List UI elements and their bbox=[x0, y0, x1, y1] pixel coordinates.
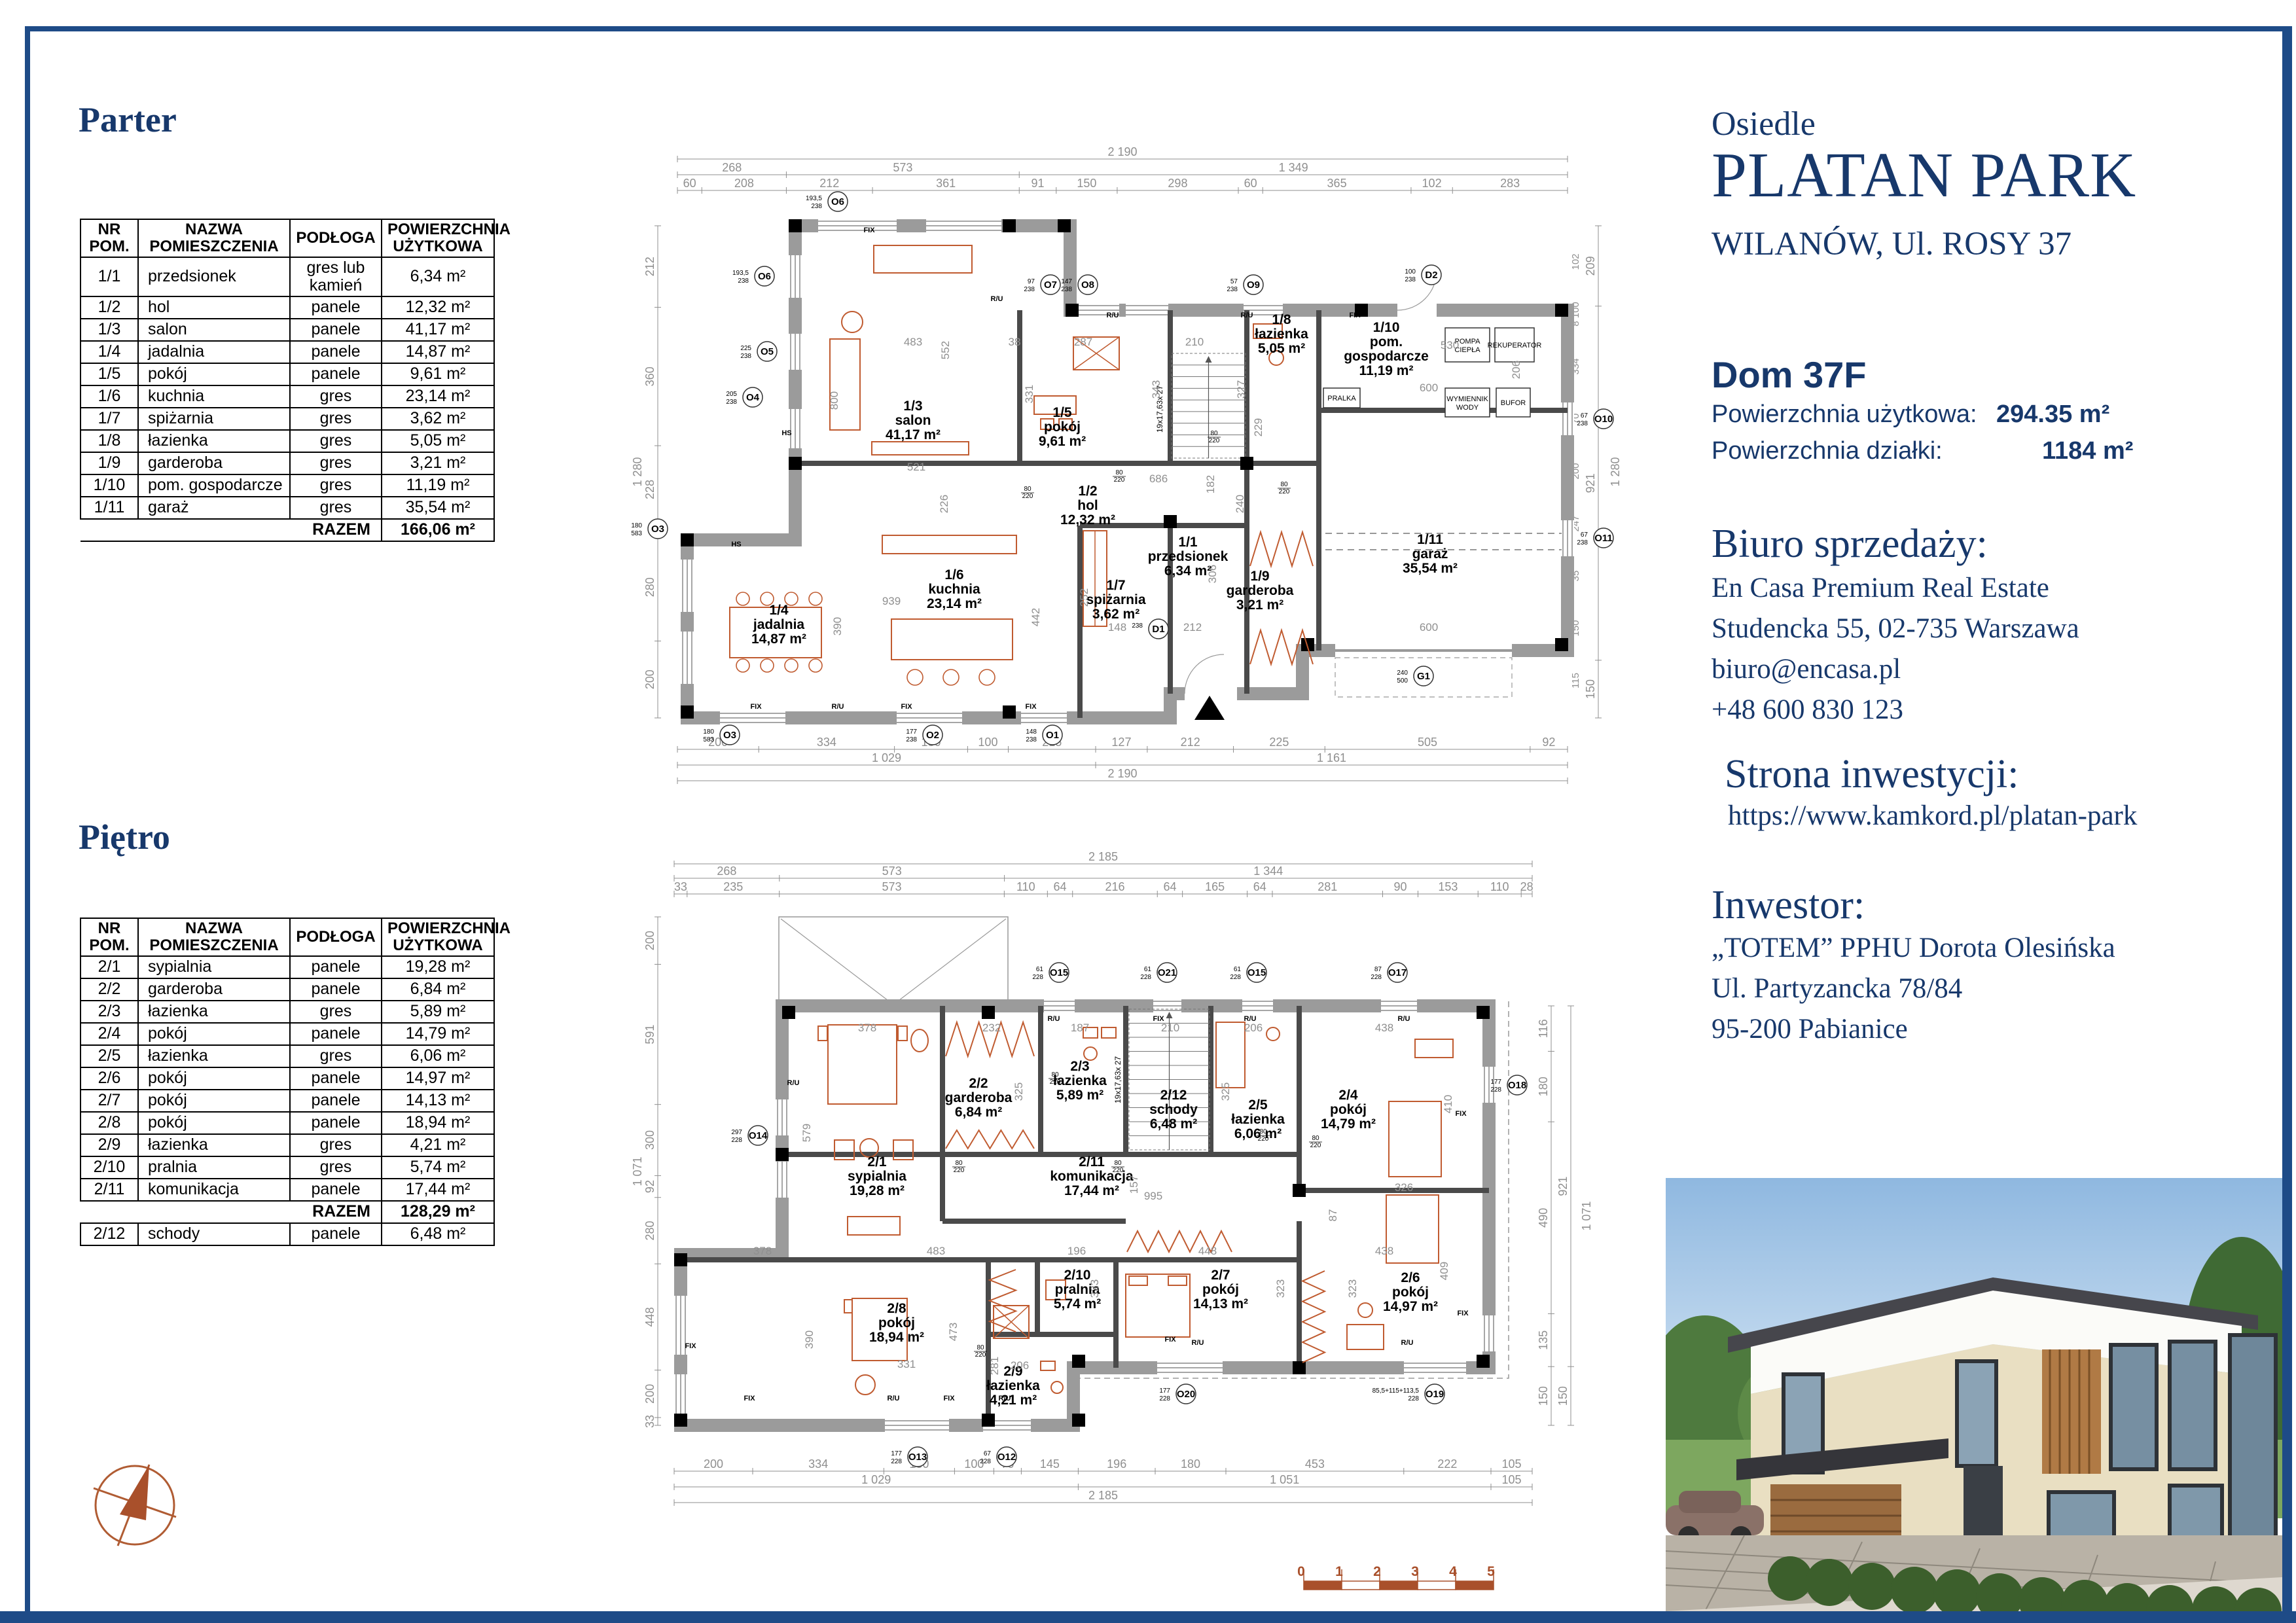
dim-label: 591 bbox=[643, 1025, 656, 1044]
room-text: jadalnia bbox=[753, 617, 805, 632]
dim-label: 115 bbox=[1570, 673, 1581, 688]
cell-ar: 5,89 m² bbox=[382, 1001, 494, 1023]
dim-label: 200 bbox=[643, 669, 656, 689]
marker-sub: 148 bbox=[1026, 728, 1037, 736]
table-row: 1/8łazienkagres5,05 m² bbox=[81, 430, 494, 452]
table-row: 2/10pralniagres5,74 m² bbox=[81, 1156, 494, 1179]
house-id: Dom 37F bbox=[1712, 353, 1867, 396]
cell-nm: garderoba bbox=[138, 452, 290, 474]
dim-label: 327 bbox=[1235, 380, 1247, 399]
marker-id: O4 bbox=[746, 392, 760, 403]
dim-label: 686 bbox=[1149, 473, 1168, 485]
marker-sub: 57 bbox=[1230, 278, 1238, 285]
col-header: POWIERZCHNIAUŻYTKOWA bbox=[382, 918, 494, 956]
cell-nm: schody bbox=[138, 1223, 290, 1245]
dim-label: 212 bbox=[1181, 736, 1200, 749]
dim-label: 2 190 bbox=[1107, 767, 1137, 780]
usable-area-line: Powierzchnia użytkowa: 294.35 m² bbox=[1712, 401, 2274, 429]
room-text: 5,74 m² bbox=[1054, 1296, 1101, 1311]
marker-sub: 583 bbox=[703, 736, 714, 743]
cell-nr: 2/5 bbox=[81, 1045, 138, 1067]
marker-sub: 228 bbox=[1408, 1395, 1419, 1402]
dim-label: 102 bbox=[1570, 253, 1581, 270]
marker-sub: 228 bbox=[1371, 974, 1382, 981]
dim-label: 280 bbox=[643, 1221, 656, 1240]
dim-label: R/U bbox=[1241, 312, 1253, 319]
dim-label: R/U bbox=[1192, 1339, 1204, 1347]
marker-id: G1 bbox=[1417, 671, 1430, 682]
window-marker-O6: O6193,5238 bbox=[732, 266, 774, 286]
marker-id: O5 bbox=[761, 346, 774, 357]
dim-label: 206 bbox=[1011, 1359, 1029, 1372]
room-text: 6,84 m² bbox=[955, 1105, 1002, 1120]
marker-sub: 238 bbox=[1061, 286, 1072, 293]
room-text: 1/1 bbox=[1178, 535, 1198, 550]
marker-sub: 238 bbox=[811, 203, 822, 210]
cell-nm: pokój bbox=[138, 1090, 290, 1112]
dim-label: 334 bbox=[817, 736, 836, 749]
col-header: PODŁOGA bbox=[290, 918, 382, 956]
room-text: spiżarnia bbox=[1086, 592, 1145, 607]
dim-label: 235 bbox=[723, 880, 743, 893]
dim-label: 180 bbox=[1181, 1457, 1200, 1471]
marker-sub: 500 bbox=[1397, 677, 1408, 685]
room-text: pokój bbox=[1044, 419, 1081, 435]
cell-fl: gres bbox=[290, 430, 382, 452]
marker-id: O13 bbox=[908, 1452, 927, 1463]
dim-label: R/U bbox=[1244, 1015, 1257, 1023]
dim-label: FIX bbox=[750, 703, 762, 711]
equipment-label: WYMIENNIK bbox=[1446, 395, 1488, 403]
marker-sub: 297 bbox=[731, 1129, 742, 1136]
marker-sub: 177 bbox=[906, 728, 917, 736]
room-text: 2/5 bbox=[1248, 1097, 1268, 1113]
dim-label: 182 bbox=[1204, 475, 1217, 493]
marker-sub: 238 bbox=[1026, 736, 1037, 743]
dim-label: 91 bbox=[1031, 177, 1045, 190]
table-row: 1/11garażgres35,54 m² bbox=[81, 497, 494, 519]
cell-ar: 14,97 m² bbox=[382, 1067, 494, 1090]
dim-label: 1 280 bbox=[631, 457, 644, 486]
sales-office-title: Biuro sprzedaży: bbox=[1712, 521, 1988, 567]
dim-label: 226 bbox=[938, 495, 950, 513]
pietro-title: Piętro bbox=[79, 817, 170, 857]
dim-label: 28 bbox=[1520, 880, 1534, 893]
dim-label: 150 bbox=[1584, 679, 1597, 699]
cell-nr: 2/6 bbox=[81, 1067, 138, 1090]
dim-label: 150 bbox=[1556, 1386, 1570, 1406]
office-phone[interactable]: +48 600 830 123 bbox=[1712, 694, 1903, 726]
dim-label: FIX bbox=[943, 1395, 955, 1402]
dim-label: 378 bbox=[753, 1245, 772, 1257]
dim-label: 268 bbox=[717, 865, 736, 878]
cell-fl: gres bbox=[290, 408, 382, 430]
room-text: 14,87 m² bbox=[751, 632, 806, 647]
dim-label: HS bbox=[781, 429, 791, 437]
table-row: 1/9garderobagres3,21 m² bbox=[81, 452, 494, 474]
marker-sub: 67 bbox=[1581, 531, 1588, 539]
equipment-label: BUFOR bbox=[1501, 399, 1526, 407]
cell-nm: salon bbox=[138, 319, 290, 341]
dim-label: 150 bbox=[1537, 1386, 1550, 1406]
cell-ar: 3,62 m² bbox=[382, 408, 494, 430]
dim-label: 323 bbox=[1274, 1279, 1287, 1298]
dim-label: R/U bbox=[888, 1395, 900, 1402]
investor-line: „TOTEM” PPHU Dorota Olesińska bbox=[1712, 932, 2115, 964]
marker-sub: 147 bbox=[1061, 278, 1072, 285]
marker-id: O1 bbox=[1046, 730, 1059, 741]
dim-label: 360 bbox=[643, 366, 656, 386]
window-marker-O17: O1787228 bbox=[1371, 963, 1407, 982]
room-text: 1/8 bbox=[1272, 312, 1291, 327]
cell-nr: 2/9 bbox=[81, 1134, 138, 1156]
room-text: łazienka bbox=[1255, 327, 1308, 342]
marker-sub: 238 bbox=[738, 277, 749, 285]
cell-ar: 17,44 m² bbox=[382, 1179, 494, 1201]
marker-id: O6 bbox=[831, 196, 844, 207]
dim-label: 573 bbox=[882, 865, 902, 878]
dim-label: 1 161 bbox=[1317, 751, 1346, 764]
room-text: 3,62 m² bbox=[1092, 607, 1139, 622]
table-row: 2/5łazienkagres6,06 m² bbox=[81, 1045, 494, 1067]
dim-label: 331 bbox=[1023, 385, 1035, 403]
cell-ar: 6,84 m² bbox=[382, 978, 494, 1001]
marker-sub: 67 bbox=[984, 1450, 992, 1457]
dim-label: 220 bbox=[1022, 493, 1033, 500]
dim-label: 325 bbox=[1013, 1082, 1025, 1101]
dim-label: 232 bbox=[982, 1022, 1001, 1034]
osiedle-label: Osiedle bbox=[1712, 105, 1816, 143]
marker-sub: 238 bbox=[1024, 286, 1035, 293]
dim-label: 33 bbox=[674, 880, 687, 893]
dim-label: 220 bbox=[1258, 1135, 1269, 1143]
dim-label: 64 bbox=[1163, 880, 1176, 893]
room-text: 1/9 bbox=[1250, 569, 1269, 584]
table-row: 1/7spiżarniagres3,62 m² bbox=[81, 408, 494, 430]
cell-nm: łazienka bbox=[138, 1045, 290, 1067]
equipment-label: WODY bbox=[1456, 404, 1479, 412]
dim-label: 390 bbox=[831, 617, 844, 635]
cell-nr: 1/6 bbox=[81, 385, 138, 408]
room-text: 2/8 bbox=[887, 1301, 906, 1316]
dim-label: 87 bbox=[1327, 1209, 1339, 1222]
equipment-label: PRALKA bbox=[1327, 395, 1356, 402]
dim-label: 1 071 bbox=[1580, 1201, 1593, 1230]
cell-nm: pokój bbox=[138, 1067, 290, 1090]
marker-sub: 228 bbox=[891, 1458, 902, 1465]
dim-label: 196 bbox=[1067, 1245, 1086, 1257]
dim-label: FIX bbox=[685, 1342, 696, 1350]
cell-nr: 1/4 bbox=[81, 341, 138, 363]
room-text: 4,21 m² bbox=[990, 1393, 1037, 1408]
dim-label: HS bbox=[731, 541, 741, 548]
room-text: hol bbox=[1077, 498, 1098, 513]
marker-id: O9 bbox=[1247, 279, 1260, 291]
dim-label: 148 bbox=[1108, 621, 1126, 633]
cell-ar: 18,94 m² bbox=[382, 1112, 494, 1134]
dim-label: R/U bbox=[991, 295, 1003, 303]
table-row: 1/1przedsionekgres lub kamień6,34 m² bbox=[81, 257, 494, 296]
room-text: 23,14 m² bbox=[927, 596, 982, 611]
dim-label: 521 bbox=[907, 461, 925, 473]
window-marker-O5: O5225238 bbox=[740, 342, 777, 361]
cell-nr: 2/1 bbox=[81, 956, 138, 978]
room-text: 6,34 m² bbox=[1164, 563, 1211, 579]
dim-label: FIX bbox=[1025, 703, 1037, 711]
pietro-room-table: NRPOM.NAZWAPOMIESZCZENIAPODŁOGAPOWIERZCH… bbox=[80, 918, 495, 1246]
dim-label: 64 bbox=[1253, 880, 1266, 893]
cell-fl: panele bbox=[290, 1023, 382, 1045]
marker-id: O12 bbox=[997, 1452, 1016, 1463]
dim-label: 298 bbox=[1168, 177, 1187, 190]
room-text: 2/4 bbox=[1338, 1088, 1358, 1103]
investment-site-url[interactable]: https://www.kamkord.pl/platan-park bbox=[1728, 800, 2137, 832]
room-text: pom. bbox=[1370, 334, 1403, 349]
cell-nr: 1/9 bbox=[81, 452, 138, 474]
dim-label: 206 bbox=[1244, 1022, 1263, 1034]
dim-label: 283 bbox=[1500, 177, 1520, 190]
dim-label: 579 bbox=[800, 1124, 813, 1142]
table-row: 1/4jadalniapanele14,87 m² bbox=[81, 341, 494, 363]
table-row: 2/2garderobapanele6,84 m² bbox=[81, 978, 494, 1001]
window-marker-G1: G1240500 bbox=[1397, 666, 1433, 686]
cell-ar: 5,74 m² bbox=[382, 1156, 494, 1179]
marker-id: O19 bbox=[1426, 1389, 1444, 1400]
cell-ar: 4,21 m² bbox=[382, 1134, 494, 1156]
cell-fl: gres bbox=[290, 1156, 382, 1179]
room-text: pokój bbox=[1392, 1285, 1429, 1300]
dim-label: 438 bbox=[1375, 1022, 1393, 1034]
cell-nr: 2/4 bbox=[81, 1023, 138, 1045]
office-line: Studencka 55, 02-735 Warszawa bbox=[1712, 613, 2079, 645]
dim-label: 323 bbox=[1346, 1279, 1359, 1298]
dim-label: 573 bbox=[893, 161, 912, 174]
window-marker-O7: O797238 bbox=[1024, 275, 1060, 294]
cell-nm: kuchnia bbox=[138, 385, 290, 408]
room-label-2-12: 2/12schody6,48 m² bbox=[1149, 1088, 1198, 1132]
dim-label: 600 bbox=[1420, 382, 1438, 394]
dim-label: 102 bbox=[1422, 177, 1442, 190]
marker-sub: 177 bbox=[891, 1450, 902, 1457]
dim-label: 229 bbox=[1252, 418, 1265, 437]
cell-fl: panele bbox=[290, 363, 382, 385]
marker-sub: 225 bbox=[740, 345, 751, 352]
plan-sheet: Parter NRPOM.NAZWAPOMIESZCZENIAPODŁOGAPO… bbox=[0, 0, 2296, 1623]
room-text: 1/7 bbox=[1106, 578, 1125, 593]
window-marker-O3: O3180583 bbox=[631, 519, 668, 539]
parter-title: Parter bbox=[79, 99, 177, 140]
room-label-1-6: 1/6kuchnia23,14 m² bbox=[927, 567, 982, 611]
dim-label: 220 bbox=[954, 1167, 965, 1174]
cell-fl: gres lub kamień bbox=[290, 257, 382, 296]
dim-label: 252 bbox=[1078, 588, 1090, 607]
col-header: NRPOM. bbox=[81, 219, 138, 257]
cell-fl: gres bbox=[290, 1045, 382, 1067]
room-text: 2/10 bbox=[1064, 1268, 1091, 1283]
cell-nr: 1/1 bbox=[81, 257, 138, 296]
window-marker-O10: O1067238 bbox=[1577, 409, 1613, 429]
cell-ar: 11,19 m² bbox=[382, 474, 494, 497]
marker-id: O10 bbox=[1594, 414, 1613, 425]
marker-id: D1 bbox=[1152, 624, 1164, 635]
cell-nm: łazienka bbox=[138, 430, 290, 452]
cell-nr: 2/3 bbox=[81, 1001, 138, 1023]
room-text: łazienka bbox=[986, 1378, 1040, 1393]
table-row: 2/8pokójpanele18,94 m² bbox=[81, 1112, 494, 1134]
dim-label: 1 280 bbox=[1609, 457, 1622, 486]
room-text: 6,48 m² bbox=[1150, 1116, 1197, 1132]
dim-label: FIX bbox=[901, 703, 912, 711]
cell-fl: panele bbox=[290, 1067, 382, 1090]
razem-row: RAZEM128,29 m² bbox=[81, 1201, 494, 1223]
table-row: 2/11komunikacjapanele17,44 m² bbox=[81, 1179, 494, 1201]
table-row: 1/3salonpanele41,17 m² bbox=[81, 319, 494, 341]
room-label-2-2: 2/2garderoba6,84 m² bbox=[945, 1076, 1013, 1120]
room-text: pokój bbox=[1202, 1282, 1239, 1297]
room-text: 2/6 bbox=[1401, 1270, 1420, 1285]
estate-name: PLATAN PARK bbox=[1712, 139, 2136, 211]
room-text: 17,44 m² bbox=[1064, 1183, 1119, 1198]
room-text: kuchnia bbox=[928, 582, 980, 597]
dim-label: R/U bbox=[999, 1395, 1011, 1402]
dim-label: 216 bbox=[1105, 880, 1124, 893]
dim-label: 110 bbox=[1490, 880, 1509, 893]
cell-nr: 1/5 bbox=[81, 363, 138, 385]
dim-label: 361 bbox=[936, 177, 956, 190]
room-text: 2/3 bbox=[1070, 1059, 1089, 1074]
dim-label: 60 bbox=[1244, 177, 1257, 190]
table-row: 2/3łazienkagres5,89 m² bbox=[81, 1001, 494, 1023]
dim-label: 448 bbox=[1198, 1245, 1217, 1257]
dim-label: 80 bbox=[1115, 469, 1123, 476]
marker-sub: 85,5+115+113,5 bbox=[1372, 1387, 1420, 1395]
dim-label: 80 bbox=[1024, 486, 1031, 493]
marker-id: O18 bbox=[1508, 1080, 1526, 1091]
cell-nr: 2/7 bbox=[81, 1090, 138, 1112]
investor-title: Inwestor: bbox=[1712, 882, 1865, 929]
room-text: 35,54 m² bbox=[1403, 561, 1458, 576]
marker-sub: 61 bbox=[1144, 966, 1152, 973]
estate-address: WILANÓW, Ul. ROSY 37 bbox=[1712, 225, 2072, 263]
cell-nr: 1/11 bbox=[81, 497, 138, 519]
cell-nr: 2/2 bbox=[81, 978, 138, 1001]
col-header: PODŁOGA bbox=[290, 219, 382, 257]
marker-sub: 193,5 bbox=[806, 195, 822, 202]
marker-sub: 228 bbox=[731, 1137, 742, 1144]
dim-label: 210 bbox=[1161, 1022, 1179, 1034]
window-marker-O12: O1267228 bbox=[980, 1447, 1016, 1467]
marker-sub: 228 bbox=[1490, 1086, 1501, 1094]
cell-ar: 19,28 m² bbox=[382, 956, 494, 978]
room-text: pokój bbox=[1330, 1102, 1367, 1117]
office-email[interactable]: biuro@encasa.pl bbox=[1712, 653, 1901, 685]
room-label-2-3: 2/3łazienka5,89 m² bbox=[1053, 1059, 1107, 1103]
marker-sub: 228 bbox=[1159, 1395, 1170, 1402]
cell-fl: panele bbox=[290, 978, 382, 1001]
dim-label: FIX bbox=[1153, 1015, 1164, 1023]
marker-id: O21 bbox=[1158, 967, 1176, 978]
dim-label: 225 bbox=[1269, 736, 1289, 749]
room-text: 1/6 bbox=[944, 567, 963, 582]
dim-label: 80 bbox=[1312, 1135, 1319, 1142]
plot-area-label: Powierzchnia działki: bbox=[1712, 437, 1943, 465]
cell-fl: panele bbox=[290, 1179, 382, 1201]
room-text: gospodarcze bbox=[1344, 349, 1429, 364]
window-marker-O4: O4205238 bbox=[726, 387, 762, 407]
col-header: POWIERZCHNIAUŻYTKOWA bbox=[382, 219, 494, 257]
dim-label: 287 bbox=[1074, 336, 1092, 348]
dim-label: 281 bbox=[988, 1357, 1001, 1375]
room-label-1-4: 1/4jadalnia14,87 m² bbox=[751, 603, 806, 647]
room-text: 12,32 m² bbox=[1060, 512, 1115, 527]
room-text: 5,89 m² bbox=[1056, 1088, 1103, 1103]
room-text: 14,79 m² bbox=[1321, 1116, 1376, 1132]
dim-label: 80 bbox=[955, 1160, 963, 1167]
cell-fl: panele bbox=[290, 956, 382, 978]
marker-id: O15 bbox=[1247, 967, 1266, 978]
marker-sub: 228 bbox=[1230, 974, 1241, 981]
table-row: 2/7pokójpanele14,13 m² bbox=[81, 1090, 494, 1112]
dim-label: 2 185 bbox=[1088, 850, 1118, 863]
room-text: 2/2 bbox=[969, 1076, 988, 1091]
window-marker-D2: D2100238 bbox=[1405, 265, 1441, 285]
dim-label: 165 bbox=[1205, 880, 1225, 893]
dim-label: 300 bbox=[643, 1130, 656, 1150]
dim-label: 1 029 bbox=[872, 751, 901, 764]
equipment-label: REKUPERATOR bbox=[1488, 342, 1542, 349]
table-row: 2/4pokójpanele14,79 m² bbox=[81, 1023, 494, 1045]
room-text: 41,17 m² bbox=[886, 427, 941, 442]
marker-id: O2 bbox=[926, 730, 939, 741]
marker-id: O11 bbox=[1594, 533, 1613, 544]
dim-label: 157 bbox=[1128, 1175, 1140, 1194]
room-label-1-9: 1/9garderoba3,21 m² bbox=[1227, 569, 1294, 613]
cell-fl: gres bbox=[290, 497, 382, 519]
dim-label: 448 bbox=[643, 1307, 656, 1327]
marker-sub: 61 bbox=[1234, 966, 1242, 973]
marker-sub: 238 bbox=[740, 353, 751, 360]
marker-sub: 238 bbox=[1405, 276, 1416, 283]
room-text: 2/11 bbox=[1079, 1154, 1105, 1169]
dim-label: 220 bbox=[1050, 1079, 1061, 1086]
dim-label: 220 bbox=[1114, 476, 1125, 484]
cell-fl: panele bbox=[290, 319, 382, 341]
marker-id: O20 bbox=[1177, 1389, 1195, 1400]
dim-label: 1 071 bbox=[631, 1156, 644, 1186]
cell-ar: 5,05 m² bbox=[382, 430, 494, 452]
dim-label: 209 bbox=[1584, 256, 1597, 276]
cell-nm: przedsionek bbox=[138, 257, 290, 296]
window-marker-O11: O1167238 bbox=[1577, 528, 1613, 548]
window-marker-O6: O6193,5238 bbox=[806, 192, 848, 211]
room-text: 19,28 m² bbox=[850, 1183, 905, 1198]
cell-fl: gres bbox=[290, 1001, 382, 1023]
dim-label: 105 bbox=[1501, 1457, 1521, 1471]
room-text: łazienka bbox=[1053, 1073, 1107, 1088]
marker-sub: 238 bbox=[726, 399, 737, 406]
dim-label: 483 bbox=[927, 1245, 945, 1257]
room-text: salon bbox=[895, 413, 931, 428]
dim-label: 80 bbox=[1051, 1071, 1059, 1079]
dim-label: R/U bbox=[1398, 1015, 1410, 1023]
dim-label: 331 bbox=[897, 1358, 916, 1370]
window-marker-O9: O957238 bbox=[1227, 275, 1263, 294]
dim-label: 921 bbox=[1556, 1177, 1570, 1196]
cell-nm: garderoba bbox=[138, 978, 290, 1001]
dim-label: 530 bbox=[1441, 339, 1459, 351]
room-text: 1/11 bbox=[1417, 532, 1443, 547]
dim-label: 222 bbox=[1437, 1457, 1457, 1471]
